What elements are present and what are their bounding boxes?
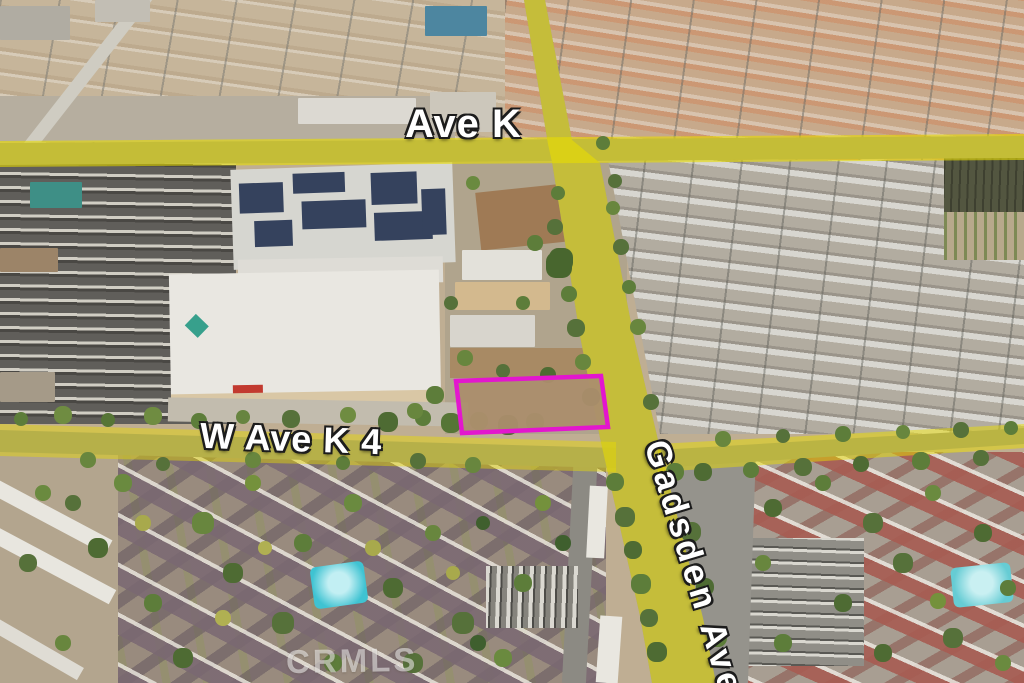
street-label-w-ave-k-4: W Ave K 4 xyxy=(199,418,383,460)
vacant-lot-outline xyxy=(456,376,608,433)
mls-watermark: CRMLS xyxy=(286,641,419,681)
aerial-listing-photo: Ave K W Ave K 4 Gadsden Ave CRMLS xyxy=(0,0,1024,683)
street-label-ave-k: Ave K xyxy=(405,104,522,144)
